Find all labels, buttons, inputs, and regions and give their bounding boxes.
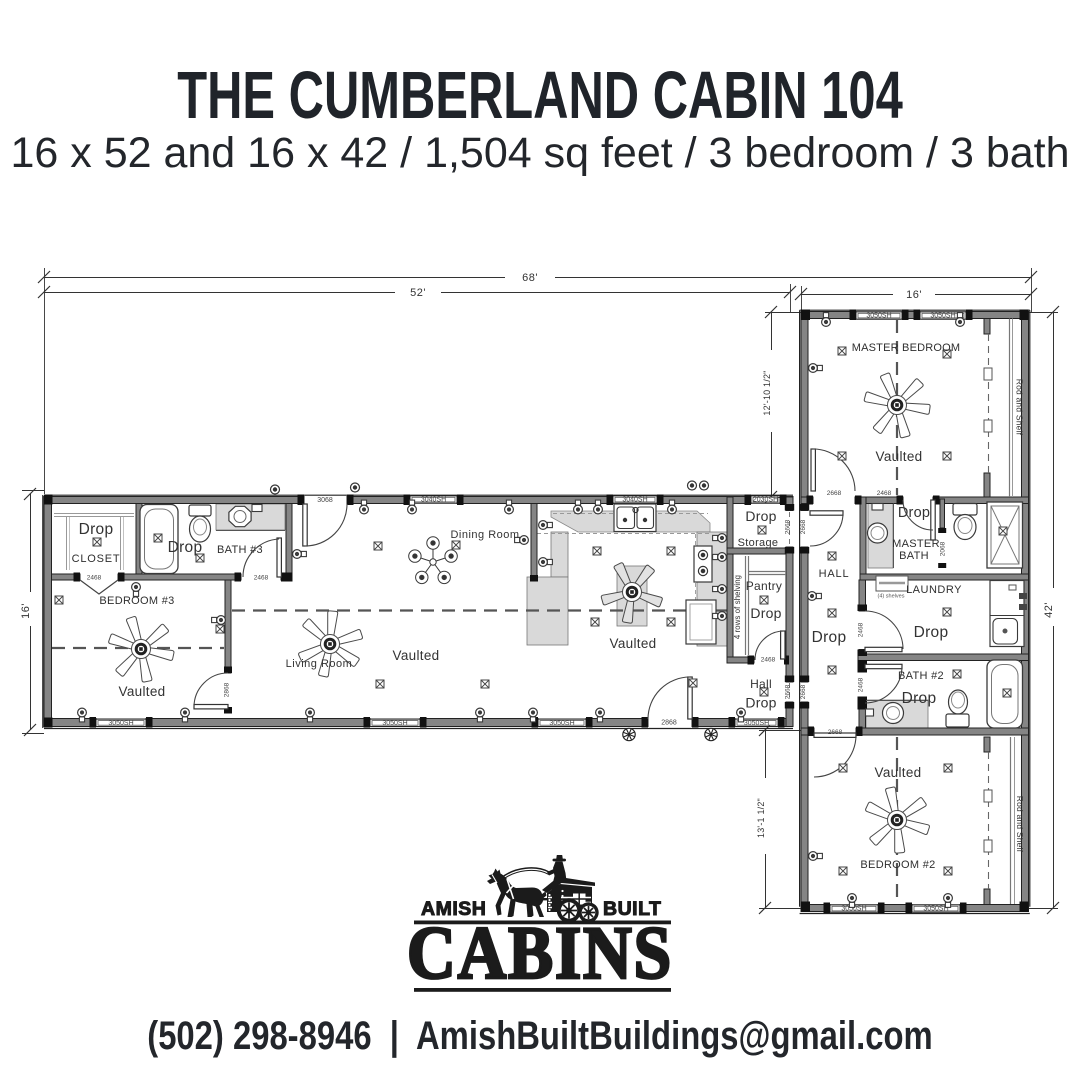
svg-text:Drop: Drop xyxy=(812,629,847,646)
svg-text:(4) shelves: (4) shelves xyxy=(878,594,905,600)
svg-text:52': 52' xyxy=(410,287,426,299)
svg-text:Drop: Drop xyxy=(79,521,114,538)
svg-text:Living Room: Living Room xyxy=(286,658,353,670)
svg-text:Pantry: Pantry xyxy=(746,579,782,593)
svg-text:Vaulted: Vaulted xyxy=(119,684,166,699)
svg-text:2468: 2468 xyxy=(858,677,865,692)
svg-text:HALL: HALL xyxy=(819,568,850,580)
svg-text:3050SH: 3050SH xyxy=(549,720,574,727)
svg-text:13'-1 1/2": 13'-1 1/2" xyxy=(756,798,766,838)
svg-text:BEDROOM #3: BEDROOM #3 xyxy=(99,595,174,607)
svg-text:2468: 2468 xyxy=(877,490,892,497)
svg-text:2468: 2468 xyxy=(761,657,776,664)
svg-text:2668: 2668 xyxy=(827,490,842,497)
svg-text:3050SH: 3050SH xyxy=(866,313,891,320)
svg-text:Vaulted: Vaulted xyxy=(393,648,440,663)
svg-text:3050SH: 3050SH xyxy=(930,313,955,320)
svg-text:MASTER BEDROOM: MASTER BEDROOM xyxy=(852,342,961,354)
svg-text:68': 68' xyxy=(522,272,538,284)
svg-text:42': 42' xyxy=(1043,602,1055,618)
svg-text:3040SH: 3040SH xyxy=(421,497,446,504)
svg-text:2468: 2468 xyxy=(87,575,102,582)
svg-text:3050SH: 3050SH xyxy=(382,720,407,727)
svg-text:Dining Room: Dining Room xyxy=(450,529,519,541)
svg-text:Drop: Drop xyxy=(745,695,776,711)
svg-text:Drop: Drop xyxy=(168,539,203,556)
svg-text:Drop: Drop xyxy=(750,605,781,621)
svg-text:16': 16' xyxy=(906,289,922,301)
svg-text:Vaulted: Vaulted xyxy=(610,636,657,651)
svg-text:2668: 2668 xyxy=(785,519,792,534)
svg-text:3040SH: 3040SH xyxy=(622,497,647,504)
svg-text:2668: 2668 xyxy=(785,684,792,699)
svg-text:3050SH: 3050SH xyxy=(744,720,769,727)
svg-text:BEDROOM #2: BEDROOM #2 xyxy=(860,859,935,871)
svg-text:Drop: Drop xyxy=(745,508,776,524)
svg-text:2868: 2868 xyxy=(224,682,231,697)
svg-text:12'-10 1/2": 12'-10 1/2" xyxy=(762,370,772,415)
svg-text:3068: 3068 xyxy=(317,497,333,504)
svg-text:16': 16' xyxy=(20,603,32,619)
svg-text:Vaulted: Vaulted xyxy=(876,449,923,464)
svg-text:Rod and Shelf: Rod and Shelf xyxy=(1015,379,1025,436)
svg-text:BATH #2: BATH #2 xyxy=(898,670,944,682)
svg-text:2030SH: 2030SH xyxy=(753,497,778,504)
svg-text:2468: 2468 xyxy=(254,575,269,582)
svg-text:2668: 2668 xyxy=(800,519,807,534)
svg-text:2068: 2068 xyxy=(940,541,947,556)
svg-text:CLOSET: CLOSET xyxy=(72,553,121,565)
svg-text:2868: 2868 xyxy=(661,720,677,727)
svg-text:Drop: Drop xyxy=(902,690,937,707)
svg-text:2668: 2668 xyxy=(800,684,807,699)
svg-text:Vaulted: Vaulted xyxy=(875,765,922,780)
svg-text:Drop: Drop xyxy=(898,505,930,521)
svg-text:Rod and Shelf: Rod and Shelf xyxy=(1015,796,1025,853)
svg-text:4 rows of shelving: 4 rows of shelving xyxy=(733,575,742,639)
svg-text:LAUNDRY: LAUNDRY xyxy=(906,584,962,596)
svg-text:BATH #3: BATH #3 xyxy=(217,544,263,556)
svg-text:Drop: Drop xyxy=(914,624,949,641)
svg-text:Storage: Storage xyxy=(738,537,779,549)
svg-text:3050SH: 3050SH xyxy=(108,720,133,727)
svg-text:Hall: Hall xyxy=(750,677,772,691)
svg-text:2468: 2468 xyxy=(858,622,865,637)
svg-text:MASTER: MASTER xyxy=(892,538,940,550)
svg-text:2668: 2668 xyxy=(828,729,843,736)
svg-text:BATH: BATH xyxy=(899,550,929,562)
